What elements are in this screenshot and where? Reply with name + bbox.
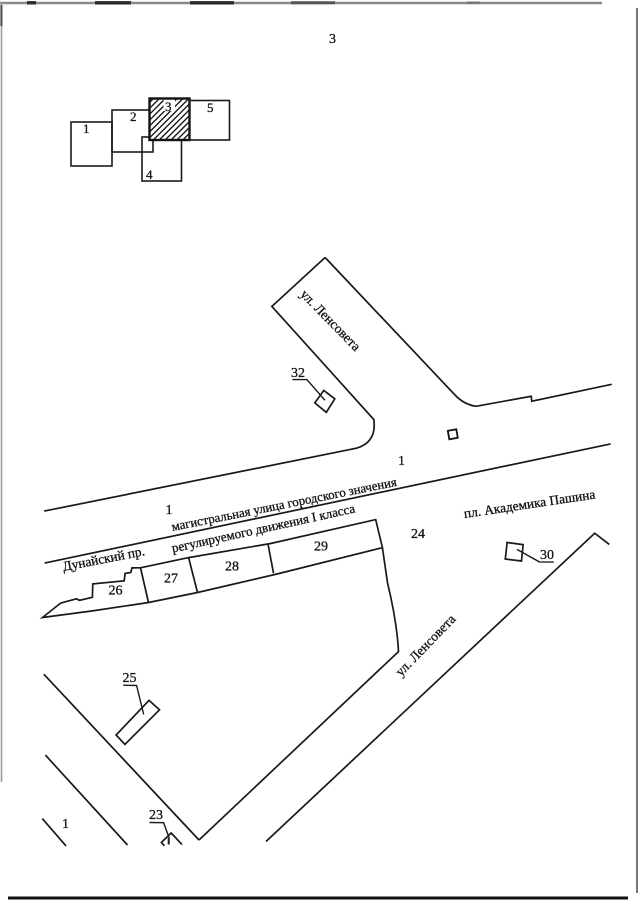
svg-text:1: 1: [398, 454, 405, 469]
svg-text:1: 1: [166, 503, 173, 518]
svg-text:25: 25: [123, 671, 137, 686]
svg-text:3: 3: [165, 99, 172, 114]
svg-text:27: 27: [164, 572, 178, 587]
svg-text:4: 4: [146, 167, 153, 182]
svg-text:28: 28: [225, 560, 239, 575]
svg-text:32: 32: [291, 366, 305, 381]
svg-text:1: 1: [83, 121, 90, 136]
svg-text:5: 5: [207, 100, 214, 115]
svg-text:26: 26: [109, 584, 123, 599]
svg-text:ул. Ленсовета: ул. Ленсовета: [297, 287, 363, 354]
svg-text:1: 1: [62, 817, 69, 832]
svg-text:3: 3: [329, 32, 336, 47]
svg-text:30: 30: [540, 548, 554, 563]
svg-text:29: 29: [314, 540, 328, 555]
svg-text:пл. Академика Пашина: пл. Академика Пашина: [463, 487, 596, 521]
svg-text:ул. Ленсовета: ул. Ленсовета: [392, 611, 458, 679]
svg-text:23: 23: [149, 808, 163, 823]
svg-text:2: 2: [130, 109, 137, 124]
svg-text:Дунайский пр.: Дунайский пр.: [61, 543, 146, 574]
svg-text:24: 24: [411, 527, 425, 542]
